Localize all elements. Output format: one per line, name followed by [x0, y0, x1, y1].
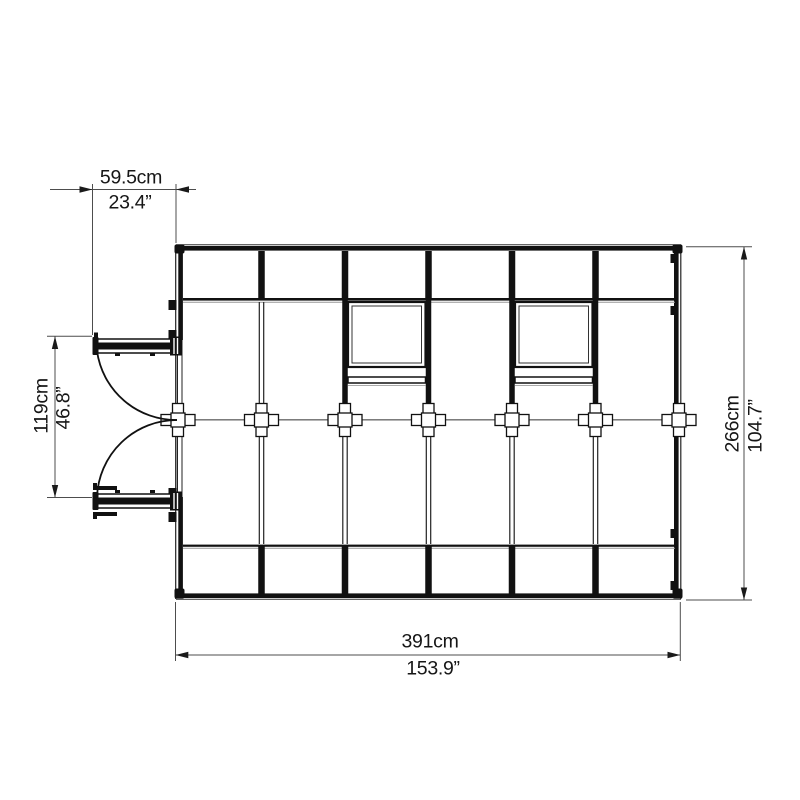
depth-cm-label: 266cm — [723, 395, 743, 452]
door-width-inch-label: 23.4” — [109, 193, 152, 213]
greenhouse-top-view-drawing — [0, 0, 800, 800]
width-inch-label: 153.9” — [406, 659, 460, 679]
dimension-lines — [47, 184, 752, 661]
door-width-cm-label: 59.5cm — [100, 168, 162, 188]
width-cm-label: 391cm — [401, 632, 458, 652]
door-opening-cm-label: 119cm — [32, 378, 52, 434]
roof-vents — [348, 302, 593, 386]
greenhouse-plan-page: 59.5cm 23.4” 119cm 46.8” 266cm 104.7” 39… — [0, 0, 800, 800]
door-opening-inch-label: 46.8” — [54, 387, 74, 430]
depth-inch-label: 104.7” — [746, 399, 766, 453]
